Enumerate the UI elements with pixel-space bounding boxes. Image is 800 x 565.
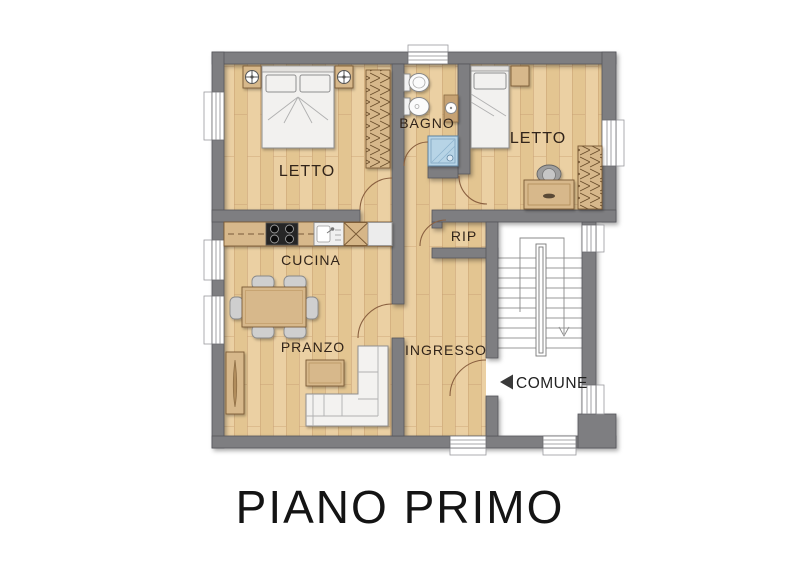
window [582, 225, 604, 252]
plan-title: PIANO PRIMO [236, 481, 565, 533]
nightstand-left [243, 66, 261, 88]
room-label-rip: RIP [451, 228, 477, 244]
desk [524, 180, 574, 209]
fridge [368, 223, 392, 246]
window [408, 45, 448, 64]
comune-door-opening [486, 358, 498, 396]
nightstand-lamp-icon [337, 70, 351, 84]
room-label-pranzo: PRANZO [281, 339, 345, 355]
room-label-letto1: LETTO [279, 163, 335, 180]
dishwasher [344, 223, 368, 246]
room-label-bagno: BAGNO [399, 115, 455, 131]
floor-plan-page: LETTO BAGNO LETTO RIP CUCINA PRANZO INGR… [0, 0, 800, 565]
room-label-cucina: CUCINA [281, 252, 341, 268]
window [602, 120, 624, 166]
kitchen-sink [314, 223, 344, 246]
nightstand [511, 66, 529, 86]
nightstand-lamp-icon [245, 70, 259, 84]
shower [428, 136, 458, 166]
kitchen-counter [224, 222, 392, 246]
double-bed [262, 66, 334, 148]
room-label-letto2: LETTO [510, 130, 566, 147]
room-label-ingresso: INGRESSO [405, 342, 487, 358]
bidet [404, 98, 429, 116]
single-bed [471, 66, 509, 148]
wall-central-vertical-upper [392, 64, 404, 304]
window [204, 92, 224, 140]
wall-stairwell-left-lower [486, 396, 498, 436]
window [204, 296, 224, 344]
window [543, 436, 576, 455]
floor-plan-canvas: LETTO BAGNO LETTO RIP CUCINA PRANZO INGR… [0, 0, 800, 565]
wall-corner-block [578, 414, 616, 448]
wall-bedroom2-south [432, 210, 616, 222]
coffee-table [306, 360, 344, 386]
dining-table [242, 287, 306, 327]
window [204, 240, 224, 280]
wardrobe [578, 146, 602, 209]
wall-bath-bedroom2 [458, 64, 470, 174]
wall-central-vertical-lower [392, 338, 404, 436]
wall-bedroom1-south [212, 210, 360, 222]
stove [266, 223, 298, 245]
sideboard [226, 352, 244, 414]
window [450, 436, 486, 455]
toilet [404, 74, 429, 92]
room-label-comune: COMUNE [516, 375, 588, 392]
wall-bath-south [428, 166, 458, 178]
nightstand-right [335, 66, 353, 88]
wall-stairwell-left-upper [486, 222, 498, 358]
wardrobe [366, 70, 390, 168]
